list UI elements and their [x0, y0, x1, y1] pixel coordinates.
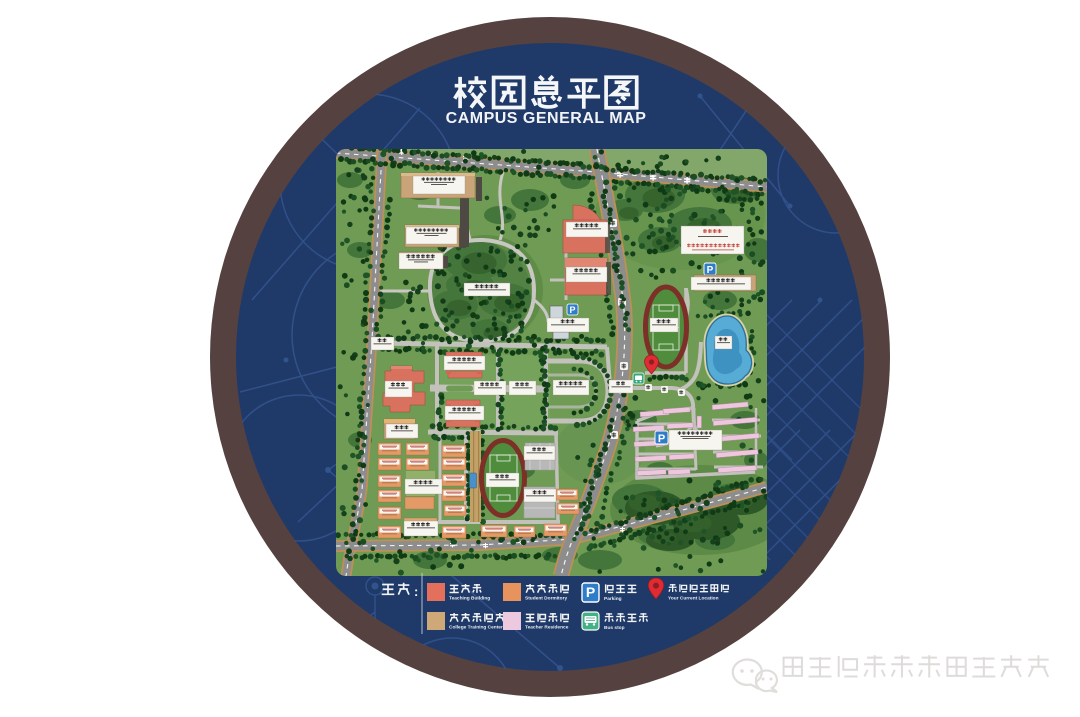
svg-text:P: P: [569, 305, 575, 315]
svg-text::: :: [414, 584, 418, 599]
svg-text:P: P: [658, 433, 665, 445]
svg-text:P: P: [586, 584, 595, 600]
svg-text:Parking: Parking: [604, 596, 622, 602]
svg-text:Your Current Location: Your Current Location: [668, 596, 719, 602]
svg-text:P: P: [707, 265, 714, 276]
svg-text:College Training Center: College Training Center: [449, 625, 503, 631]
svg-text:Teaching Building: Teaching Building: [449, 596, 490, 602]
svg-text:CAMPUS GENERAL MAP: CAMPUS GENERAL MAP: [446, 110, 647, 127]
svg-text:Teacher Residence: Teacher Residence: [525, 625, 569, 631]
svg-text:Bus stop: Bus stop: [604, 625, 625, 631]
svg-text:Student Dormitory: Student Dormitory: [525, 596, 567, 602]
